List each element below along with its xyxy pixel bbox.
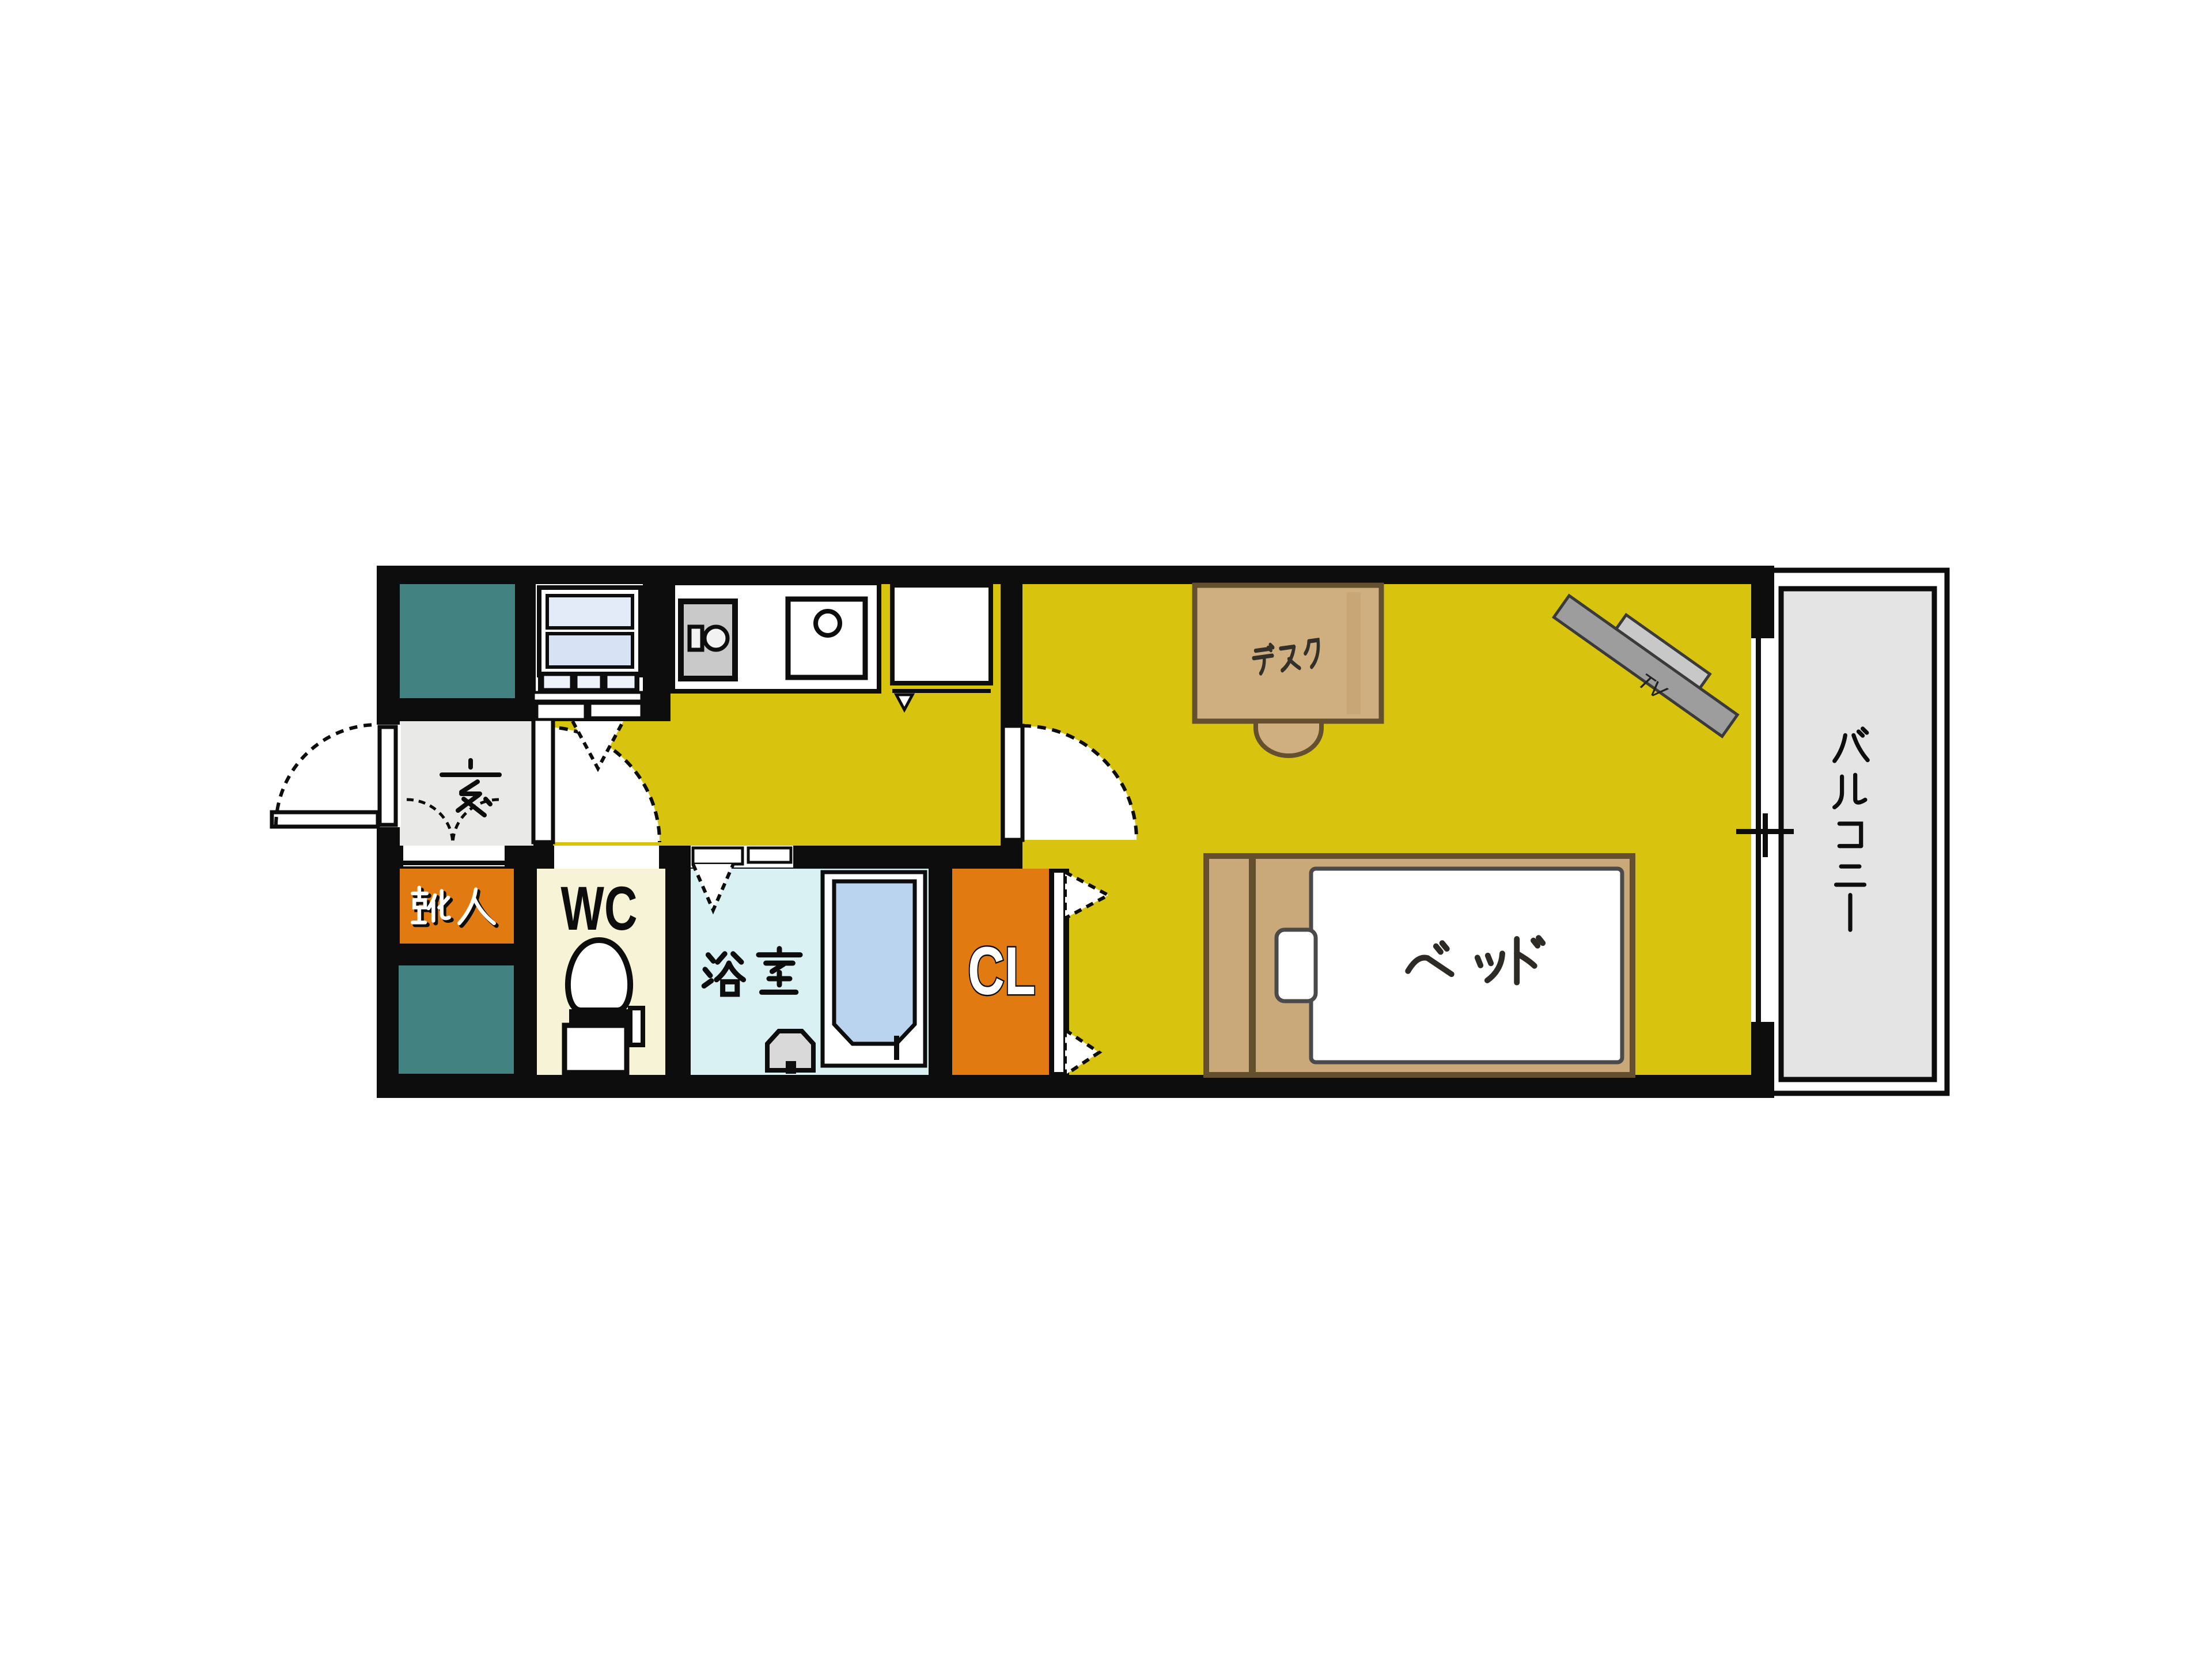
svg-text:WC: WC <box>560 874 637 944</box>
svg-text:CL: CL <box>968 934 1036 1009</box>
